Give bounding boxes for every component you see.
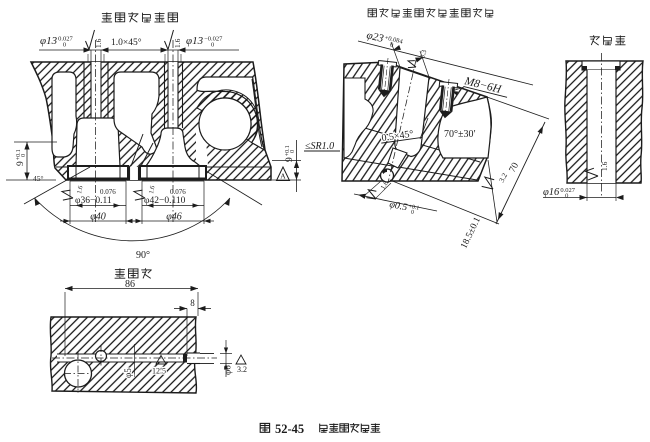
svg-text:1.6: 1.6 (600, 161, 609, 171)
svg-text:86: 86 (125, 279, 135, 290)
svg-text:45°: 45° (33, 174, 44, 183)
svg-text:12.5: 12.5 (152, 367, 166, 376)
svg-text:1.6: 1.6 (173, 38, 182, 48)
svg-text:φ40: φ40 (90, 212, 106, 223)
svg-text:1.0×45°: 1.0×45° (111, 37, 142, 48)
svg-text:70°±30′: 70°±30′ (444, 129, 476, 140)
svg-text:52-45: 52-45 (275, 422, 304, 436)
svg-text:1.6: 1.6 (94, 38, 103, 48)
svg-text:φ5: φ5 (123, 368, 133, 378)
svg-text:8: 8 (190, 298, 195, 308)
svg-text:90°: 90° (136, 250, 150, 261)
svg-text:φ42−0.110: φ42−0.110 (144, 196, 186, 206)
svg-text:φ6: φ6 (223, 365, 233, 375)
svg-text:≤SR1.0: ≤SR1.0 (305, 141, 334, 152)
svg-text:0.076: 0.076 (100, 188, 116, 196)
svg-text:3.2: 3.2 (237, 365, 247, 374)
svg-text:φ46: φ46 (166, 212, 182, 223)
svg-text:φ36−0.11: φ36−0.11 (75, 196, 112, 206)
svg-text:A: A (280, 172, 286, 181)
svg-text:0.076: 0.076 (170, 188, 186, 196)
